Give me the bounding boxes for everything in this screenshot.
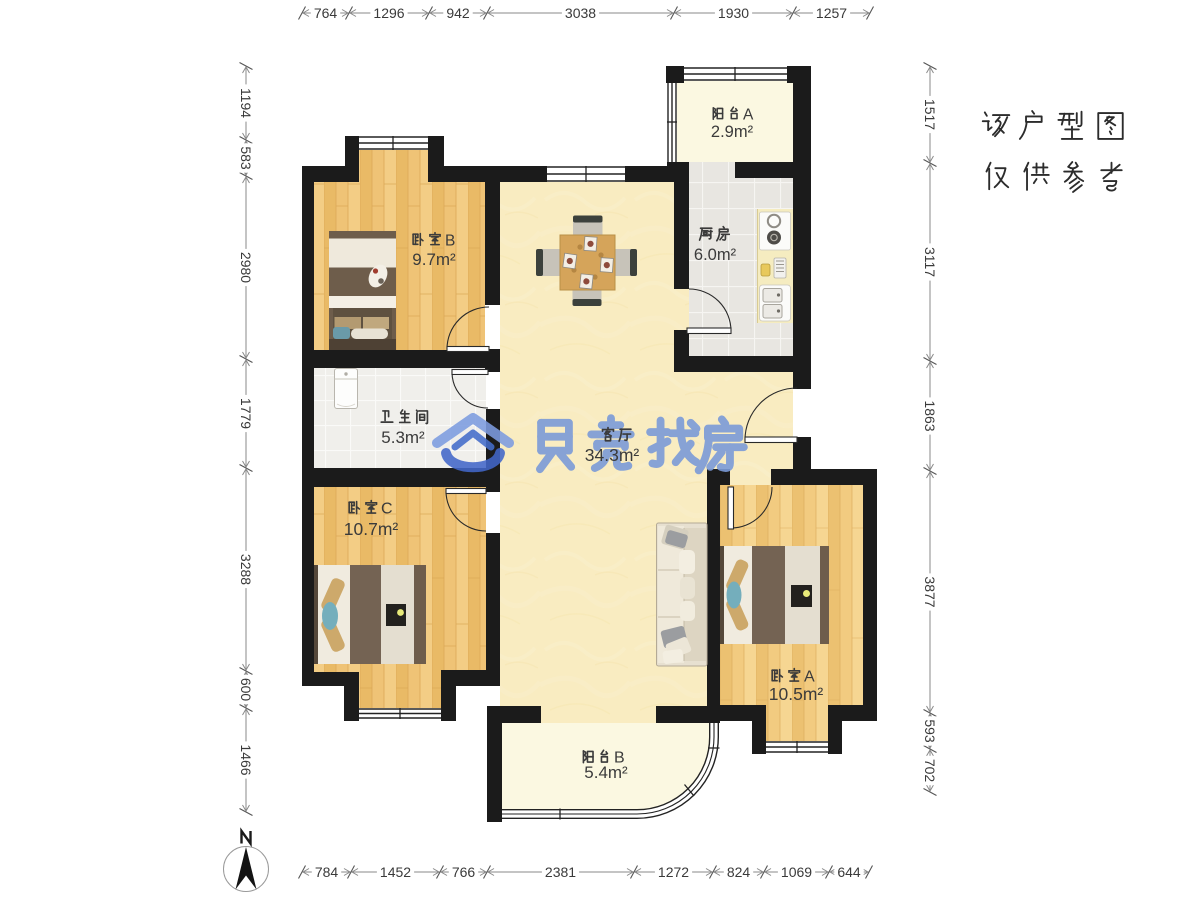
svg-text:644: 644 [837,864,861,880]
svg-text:5.4m²: 5.4m² [584,763,628,782]
svg-text:824: 824 [727,864,751,880]
svg-text:10.7m²: 10.7m² [344,519,399,539]
svg-text:1069: 1069 [781,864,812,880]
svg-text:1517: 1517 [922,99,938,130]
svg-text:5.3m²: 5.3m² [381,428,425,447]
svg-text:C: C [381,501,393,518]
svg-text:A: A [804,669,815,686]
svg-text:6.0m²: 6.0m² [694,246,737,264]
svg-text:764: 764 [314,5,338,21]
svg-text:1779: 1779 [238,398,254,429]
svg-text:B: B [445,233,455,250]
svg-text:784: 784 [315,864,339,880]
svg-text:3117: 3117 [922,247,938,277]
svg-text:3877: 3877 [922,576,938,607]
svg-text:A: A [743,107,754,124]
svg-text:942: 942 [446,5,470,21]
svg-text:1452: 1452 [380,864,411,880]
svg-text:1296: 1296 [373,5,404,21]
svg-text:34.3m²: 34.3m² [585,445,640,465]
svg-text:2381: 2381 [545,864,576,880]
svg-text:10.5m²: 10.5m² [769,684,824,704]
svg-text:3038: 3038 [565,5,596,21]
svg-text:1930: 1930 [718,5,749,21]
svg-text:1863: 1863 [922,400,938,431]
svg-text:9.7m²: 9.7m² [412,250,456,269]
svg-text:593: 593 [922,719,938,743]
svg-text:2.9m²: 2.9m² [711,123,754,141]
svg-text:1194: 1194 [238,88,254,118]
svg-text:1257: 1257 [816,5,847,21]
svg-text:583: 583 [238,146,254,170]
svg-text:1466: 1466 [238,744,254,775]
svg-text:600: 600 [238,678,254,702]
svg-text:3288: 3288 [238,554,254,585]
svg-text:702: 702 [922,759,938,783]
svg-text:2980: 2980 [238,252,254,283]
svg-text:1272: 1272 [658,864,689,880]
svg-text:766: 766 [452,864,476,880]
